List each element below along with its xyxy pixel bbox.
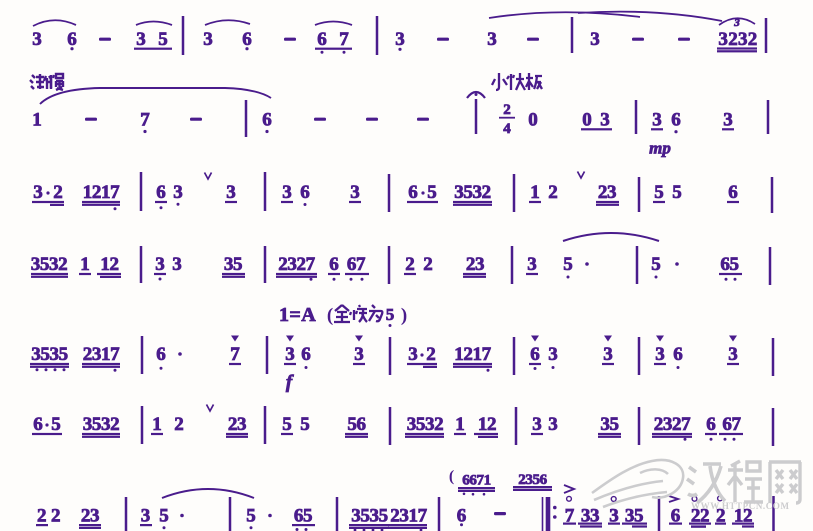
svg-text:5: 5 <box>563 254 573 275</box>
svg-text:23: 23 <box>598 182 616 203</box>
svg-text:3: 3 <box>226 182 236 203</box>
svg-text:3: 3 <box>136 29 146 50</box>
svg-text:3: 3 <box>548 414 558 435</box>
svg-text:6: 6 <box>408 182 418 203</box>
svg-text:1: 1 <box>455 414 465 435</box>
svg-text:3532: 3532 <box>83 414 119 435</box>
svg-text:0: 0 <box>528 110 538 131</box>
svg-text:2317: 2317 <box>390 506 427 527</box>
svg-text:mp: mp <box>649 139 671 158</box>
svg-text:56: 56 <box>347 414 365 435</box>
svg-text:(: ( <box>449 468 454 485</box>
svg-text:2: 2 <box>405 254 415 275</box>
svg-text:3: 3 <box>282 182 292 203</box>
svg-text:3535: 3535 <box>31 344 67 365</box>
svg-text:6: 6 <box>728 182 738 203</box>
svg-text:3535: 3535 <box>351 506 387 527</box>
svg-text:5: 5 <box>654 182 664 203</box>
svg-text:2356: 2356 <box>518 472 547 488</box>
svg-text:3: 3 <box>155 254 165 275</box>
svg-text:3: 3 <box>548 344 558 365</box>
svg-text:6: 6 <box>329 254 339 275</box>
svg-text:5: 5 <box>651 254 661 275</box>
svg-text:3: 3 <box>603 344 613 365</box>
svg-text:3: 3 <box>723 110 733 131</box>
svg-text:3: 3 <box>203 29 213 50</box>
svg-text:1: 1 <box>80 254 90 275</box>
svg-text:3532: 3532 <box>454 182 490 203</box>
svg-text:2: 2 <box>503 102 511 118</box>
svg-text:1: 1 <box>530 182 540 203</box>
svg-text:6: 6 <box>706 414 716 435</box>
svg-text:35: 35 <box>224 254 242 275</box>
svg-text:7: 7 <box>230 344 240 365</box>
svg-text:2: 2 <box>426 344 436 365</box>
svg-text:(: ( <box>327 305 333 326</box>
svg-text:6: 6 <box>673 344 683 365</box>
svg-text:65: 65 <box>294 506 312 527</box>
svg-text:1217: 1217 <box>83 182 120 203</box>
svg-text:12: 12 <box>100 254 118 275</box>
svg-text:2: 2 <box>37 506 47 527</box>
svg-text:3: 3 <box>532 414 542 435</box>
svg-text:65: 65 <box>720 254 738 275</box>
svg-text:23: 23 <box>228 414 246 435</box>
svg-text:1217: 1217 <box>454 344 491 365</box>
svg-text:2: 2 <box>174 414 184 435</box>
svg-text:5: 5 <box>386 305 395 324</box>
svg-text:WWW.HTTPCN.COM: WWW.HTTPCN.COM <box>691 501 790 511</box>
svg-text:3: 3 <box>172 254 182 275</box>
svg-text:6: 6 <box>530 344 540 365</box>
svg-text:67: 67 <box>722 414 741 435</box>
svg-text:6: 6 <box>156 344 166 365</box>
svg-text:67: 67 <box>347 254 366 275</box>
svg-text:3532: 3532 <box>407 414 443 435</box>
svg-text:3: 3 <box>395 29 405 50</box>
svg-text:1: 1 <box>152 414 162 435</box>
svg-text:6: 6 <box>300 182 310 203</box>
svg-text:6: 6 <box>156 182 166 203</box>
svg-text:5: 5 <box>300 414 310 435</box>
svg-text:3: 3 <box>487 29 497 50</box>
svg-text:6671: 6671 <box>462 473 490 489</box>
svg-text:2327: 2327 <box>278 254 315 275</box>
svg-text:3: 3 <box>33 182 43 203</box>
svg-text:3: 3 <box>590 29 600 50</box>
svg-text:3: 3 <box>285 344 295 365</box>
svg-text:3: 3 <box>652 110 662 131</box>
svg-text:35: 35 <box>600 414 618 435</box>
svg-text:6: 6 <box>33 414 43 435</box>
svg-text:0: 0 <box>582 110 592 131</box>
svg-text:3532: 3532 <box>31 254 67 275</box>
svg-text:6: 6 <box>262 110 272 131</box>
svg-text:6: 6 <box>67 29 77 50</box>
svg-text:6: 6 <box>671 110 681 131</box>
svg-text:3: 3 <box>408 344 418 365</box>
svg-text:3: 3 <box>600 110 610 131</box>
svg-text:3: 3 <box>173 182 183 203</box>
svg-text:3: 3 <box>354 344 364 365</box>
svg-text:3: 3 <box>141 506 151 527</box>
svg-text:5: 5 <box>51 414 61 435</box>
svg-text:5: 5 <box>282 414 292 435</box>
svg-text:3: 3 <box>350 182 360 203</box>
svg-text:7: 7 <box>140 110 150 131</box>
svg-text:3: 3 <box>728 344 738 365</box>
svg-text:3: 3 <box>655 344 665 365</box>
svg-text:5: 5 <box>427 182 437 203</box>
svg-text:7: 7 <box>339 29 349 50</box>
svg-text:2327: 2327 <box>654 414 691 435</box>
svg-text:23: 23 <box>466 254 484 275</box>
svg-text:6: 6 <box>317 29 327 50</box>
svg-text:23: 23 <box>81 506 99 527</box>
svg-text:12: 12 <box>478 414 496 435</box>
svg-text:2: 2 <box>548 182 558 203</box>
svg-text:3: 3 <box>32 29 42 50</box>
svg-text:4: 4 <box>503 121 511 137</box>
svg-text:): ) <box>401 305 407 326</box>
svg-text:3: 3 <box>527 254 537 275</box>
svg-text:5: 5 <box>672 182 682 203</box>
svg-text:5: 5 <box>159 506 169 527</box>
svg-text:2317: 2317 <box>83 344 120 365</box>
svg-text:6: 6 <box>242 29 252 50</box>
svg-text:3232: 3232 <box>718 29 757 50</box>
svg-text:1: 1 <box>32 110 42 131</box>
svg-text:5: 5 <box>158 29 168 50</box>
svg-text:2: 2 <box>53 182 63 203</box>
svg-text:2: 2 <box>423 254 433 275</box>
svg-text:6: 6 <box>301 344 311 365</box>
svg-text:1=A: 1=A <box>279 304 316 326</box>
svg-text:3: 3 <box>733 17 740 29</box>
svg-text:5: 5 <box>246 506 256 527</box>
svg-text:2: 2 <box>51 506 61 527</box>
